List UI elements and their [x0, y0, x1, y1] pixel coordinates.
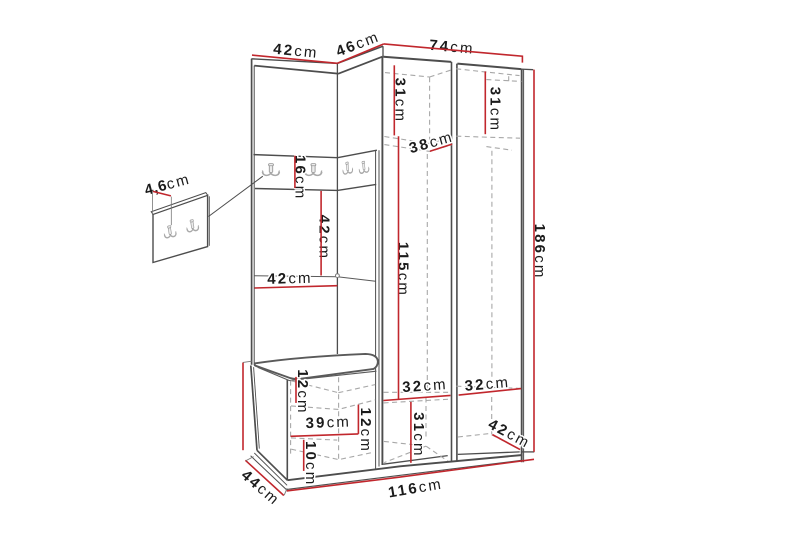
svg-text:32cm: 32cm — [402, 376, 449, 396]
svg-text:42cm: 42cm — [267, 269, 313, 287]
svg-text:31cm: 31cm — [410, 412, 427, 458]
svg-text:39cm: 39cm — [305, 413, 351, 432]
svg-text:42cm: 42cm — [316, 215, 333, 261]
svg-text:115cm: 115cm — [395, 242, 412, 297]
svg-text:31cm: 31cm — [486, 87, 503, 133]
svg-text:12cm: 12cm — [357, 408, 374, 454]
